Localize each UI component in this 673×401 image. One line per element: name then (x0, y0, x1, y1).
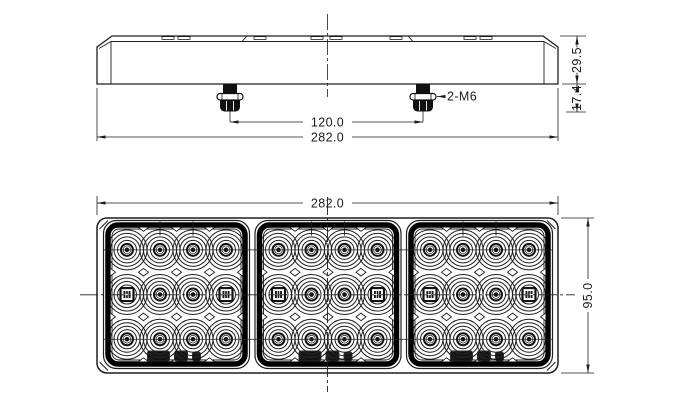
dim-text-overall-width: 282.0 (311, 131, 344, 145)
stud-shank (223, 84, 237, 94)
stud-washer (217, 94, 243, 101)
marking-blob (478, 351, 491, 361)
marking-blob (148, 351, 170, 361)
front-view: 282.0 95.0 (80, 196, 595, 392)
marking-blob (326, 351, 339, 361)
marking-blob (299, 351, 321, 361)
stud-nut (413, 100, 433, 112)
marking-blob (175, 351, 188, 361)
stud-nut (220, 100, 240, 112)
mould-tab (464, 37, 476, 40)
dim-front-overall-height: 95.0 (561, 218, 595, 373)
dim-bolt-spacing: 120.0 (230, 116, 423, 130)
marking-blob (451, 351, 473, 361)
mould-tab (311, 37, 323, 40)
dim-text-stud-length: 17.4 (570, 85, 584, 111)
callout-text-studs: 2-M6 (447, 90, 477, 104)
dim-text-bolt-spacing: 120.0 (311, 116, 344, 130)
top-view: 120.0 282.0 29.5 17.4 2-M6 (97, 14, 586, 145)
marking-blob (344, 352, 352, 361)
marking-blob (193, 352, 201, 361)
dim-heights: 29.5 17.4 (560, 36, 586, 112)
dim-text-front-height: 95.0 (581, 283, 595, 309)
mould-tab (390, 37, 402, 40)
mould-tab (162, 37, 174, 40)
dim-text-front-width: 282.0 (311, 197, 344, 211)
mould-tab (254, 37, 266, 40)
mould-tab (330, 37, 342, 40)
mould-tab (480, 37, 492, 40)
mounting-stud-right (410, 84, 436, 122)
drawing-canvas: 120.0 282.0 29.5 17.4 2-M6 (0, 0, 673, 401)
stud-shank (416, 84, 430, 94)
dim-text-body-height: 29.5 (570, 47, 584, 73)
callout-studs: 2-M6 (437, 90, 477, 104)
technical-drawing: 120.0 282.0 29.5 17.4 2-M6 (0, 0, 673, 401)
stud-washer (410, 94, 436, 101)
marking-blob (496, 352, 504, 361)
mould-tab (178, 37, 190, 40)
mounting-stud-left (217, 84, 243, 122)
